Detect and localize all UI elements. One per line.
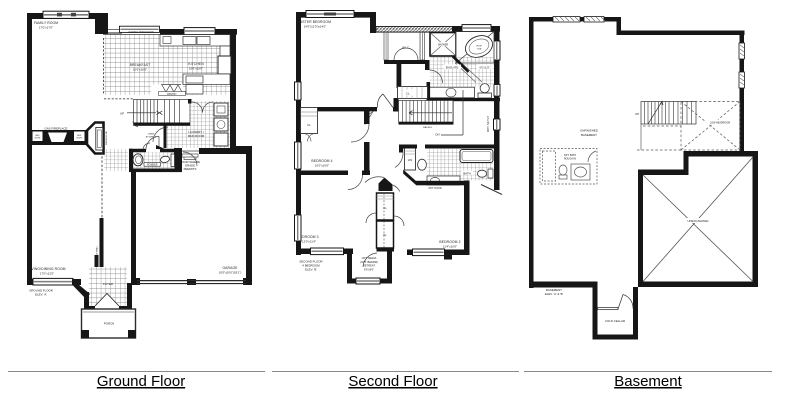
svg-text:HALF WALL: HALF WALL	[96, 245, 99, 258]
svg-text:PERMITS: PERMITS	[184, 167, 197, 171]
svg-text:CL: CL	[307, 123, 311, 127]
svg-text:ROUGH-IN: ROUGH-IN	[564, 157, 576, 160]
svg-text:MEDIA NICHE: MEDIA NICHE	[105, 131, 108, 145]
svg-text:RAILING: RAILING	[423, 126, 432, 129]
svg-text:10'6"x10'0": 10'6"x10'0"	[189, 67, 203, 71]
svg-text:ROM: ROM	[476, 45, 481, 47]
svg-text:BEDROOM 4: BEDROOM 4	[311, 159, 332, 163]
svg-text:GARAGE: GARAGE	[222, 266, 238, 270]
svg-text:UNFINISHED: UNFINISHED	[580, 129, 598, 133]
svg-text:LINEN: LINEN	[148, 134, 155, 136]
svg-text:PORCH: PORCH	[104, 322, 114, 326]
svg-text:LIVING/DINING ROOM: LIVING/DINING ROOM	[28, 267, 65, 271]
svg-text:POWDER: POWDER	[147, 165, 158, 167]
svg-text:Basement: Basement	[614, 373, 682, 390]
svg-text:6'6"x9'6": 6'6"x9'6"	[364, 267, 374, 271]
svg-text:BREAKFAST: BREAKFAST	[130, 63, 151, 67]
svg-text:Second Floor: Second Floor	[348, 373, 437, 390]
svg-text:12'0"x11'4": 12'0"x11'4"	[302, 240, 316, 244]
svg-text:B/I SHELF: B/I SHELF	[146, 137, 157, 139]
svg-text:LIN: LIN	[408, 158, 413, 162]
svg-text:RETREAT: RETREAT	[363, 264, 375, 268]
svg-text:SHOWER: SHOWER	[438, 44, 449, 46]
svg-text:CL.: CL.	[406, 92, 411, 96]
svg-text:COLD CELLAR: COLD CELLAR	[605, 319, 625, 323]
svg-text:UP: UP	[120, 112, 124, 116]
svg-text:SLIDING PATIO DOOR: SLIDING PATIO DOOR	[129, 31, 154, 34]
svg-text:ELEV. 'A' & 'B': ELEV. 'A' & 'B'	[545, 292, 564, 296]
svg-text:6'0"x12'1": 6'0"x12'1"	[480, 66, 491, 69]
svg-text:(OPT. BEDRM): (OPT. BEDRM)	[360, 260, 378, 264]
svg-text:10'0"x10'0": 10'0"x10'0"	[315, 164, 329, 168]
svg-text:ELEV. 'A': ELEV. 'A'	[35, 293, 47, 297]
svg-text:Ground Floor: Ground Floor	[97, 373, 185, 390]
svg-text:10'6"x10'0": 10'6"x10'0"	[133, 68, 147, 72]
svg-text:OPT. MEDIA: OPT. MEDIA	[362, 256, 377, 260]
svg-text:FAMILY ROOM: FAMILY ROOM	[34, 21, 58, 25]
svg-text:TUB: TUB	[477, 48, 482, 50]
svg-text:11'4"x10'0": 11'4"x10'0"	[443, 245, 457, 249]
svg-text:GAS FIREPLACE: GAS FIREPLACE	[45, 126, 68, 130]
svg-text:ENSUITE: ENSUITE	[446, 65, 459, 69]
svg-text:LOW HEADROOM: LOW HEADROOM	[710, 121, 730, 124]
svg-text:OPT. SKYLT: OPT. SKYLT	[486, 116, 490, 132]
svg-text:14'0"(12'0")x14'0": 14'0"(12'0")x14'0"	[304, 25, 327, 29]
svg-text:KITCHEN: KITCHEN	[188, 62, 204, 66]
svg-text:PANTRY: PANTRY	[167, 93, 177, 96]
svg-text:BASEMENT: BASEMENT	[581, 133, 597, 137]
svg-text:FOYER: FOYER	[103, 282, 113, 286]
svg-text:17'0"x12'0": 17'0"x12'0"	[40, 272, 54, 276]
svg-text:BATH: BATH	[463, 171, 471, 175]
svg-text:ELEV. 'B': ELEV. 'B'	[305, 268, 317, 272]
svg-text:DN: DN	[435, 133, 439, 137]
svg-text:BEDROOM 2: BEDROOM 2	[439, 240, 460, 244]
svg-text:UP: UP	[635, 112, 639, 116]
svg-text:UNEXCAVATED: UNEXCAVATED	[687, 219, 708, 223]
svg-text:NICHE: NICHE	[35, 137, 41, 139]
svg-text:10'0"x20'0"(18'1"): 10'0"x20'0"(18'1")	[219, 271, 242, 275]
svg-text:17'0"x17'0": 17'0"x17'0"	[39, 26, 53, 30]
svg-text:MUD ROOM: MUD ROOM	[188, 134, 205, 138]
svg-text:OPT. DOOR: OPT. DOOR	[428, 187, 441, 190]
svg-text:NICHE: NICHE	[76, 137, 82, 139]
svg-text:W.I.C.: W.I.C.	[402, 46, 410, 50]
svg-text:MASTER BEDROOM: MASTER BEDROOM	[297, 20, 331, 24]
